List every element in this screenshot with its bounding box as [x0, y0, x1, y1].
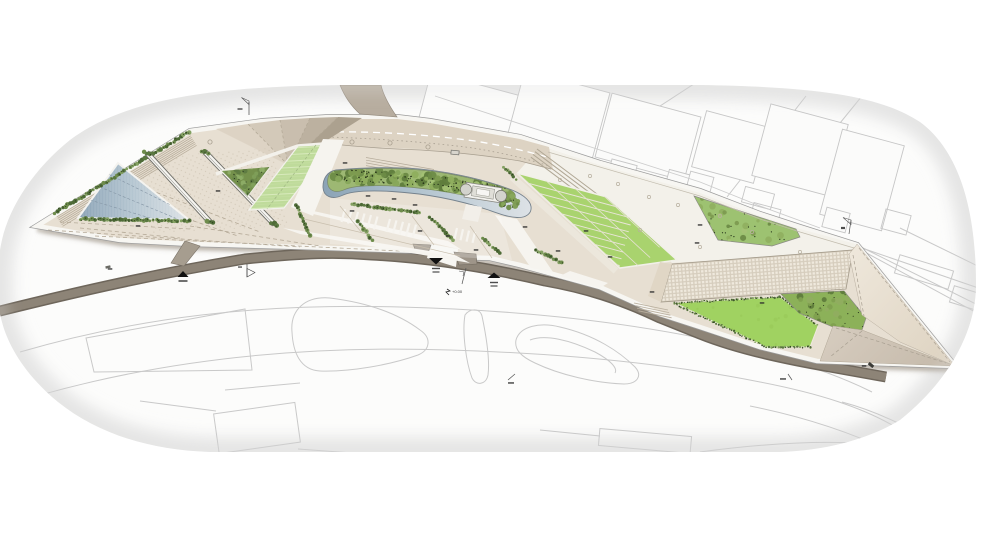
svg-text:+0.00: +0.00: [452, 289, 463, 294]
